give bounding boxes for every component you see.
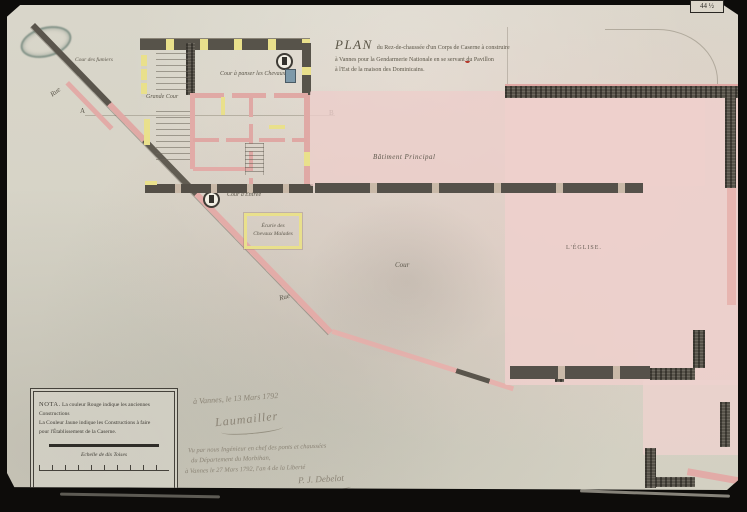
- staircase: [245, 143, 264, 175]
- stable-stall-lines-2: [156, 111, 190, 163]
- cour-des-fumiers-label: Cour des fumiers: [75, 57, 113, 63]
- batiment-principal-label: Bâtiment Principal: [373, 153, 435, 161]
- water-trough: [285, 69, 296, 83]
- ecurie-label-line2: Chevaux Malades: [247, 230, 299, 238]
- stable-stall-lines-1: [156, 53, 190, 95]
- batiment-south-wall: [315, 183, 643, 193]
- building-partition-horizontal-2: [193, 167, 251, 171]
- eglise-wash: [505, 96, 741, 385]
- manuscript-date: à Vannes, le 13 Mars 1792: [193, 391, 279, 406]
- building-partition-horizontal: [193, 138, 307, 142]
- yellow-inner-wall-2: [269, 125, 285, 129]
- paper-edge-glint-left: [60, 493, 220, 499]
- scale-caption: Echelle de dix Toises: [39, 451, 169, 460]
- lower-east-wall: [720, 402, 730, 447]
- point-a-label: A: [80, 107, 86, 115]
- title-line3: à l'Est de la maison des Dominicains.: [335, 67, 550, 73]
- connecting-wall: [650, 368, 695, 380]
- red-check-mark: [465, 57, 470, 63]
- rue-label-lower: Rue: [278, 292, 291, 303]
- nota-heading: NOTA.: [39, 401, 61, 408]
- pencil-arc: [605, 29, 718, 92]
- cour-label: Cour: [395, 261, 409, 269]
- caserne-right-wall: [302, 43, 311, 95]
- south-corner-wall-h: [645, 477, 695, 487]
- yellow-wall-segment-1: [141, 55, 147, 97]
- well-icon-2: [203, 191, 220, 208]
- title-line2: à Vannes pour la Gendarmerie Nationale e…: [335, 57, 550, 63]
- nota-line3: La Couleur Jaune indique les Constructio…: [39, 419, 169, 428]
- title-line1: du Rez-de-chaussée d'un Corps de Caserne…: [377, 45, 510, 51]
- inner-cross-wall: [693, 330, 705, 368]
- building-left-wall: [190, 93, 195, 169]
- court-shading: [307, 197, 507, 367]
- nota-line1: La couleur Rouge indique les anciennes: [62, 402, 150, 408]
- signature-flourish-2: [296, 484, 351, 493]
- manuscript-approval-3: à Vannes le 27 Mars 1792, l'an 4 de la L…: [185, 464, 306, 475]
- ecurie-room: Écurie des Chevaux Malades: [244, 213, 302, 249]
- yellow-wall-segment-2: [144, 119, 150, 145]
- nota-legend-box: NOTA. La couleur Rouge indique les ancie…: [30, 388, 178, 492]
- entry-court-wall-yellow: [145, 181, 157, 185]
- photographed-plan: PLAN du Rez-de-chaussée d'un Corps de Ca…: [0, 0, 747, 512]
- court-south-wall: [510, 366, 650, 379]
- manuscript-approval-1: Vu par nous Ingénieur en chef des ponts …: [188, 443, 327, 455]
- title-plan-word: PLAN: [335, 37, 373, 52]
- well-icon: [276, 53, 293, 70]
- nota-legend-inner: NOTA. La couleur Rouge indique les ancie…: [33, 391, 175, 489]
- south-pink-diagonal: [687, 468, 742, 484]
- yellow-inner-wall-1: [221, 97, 225, 115]
- cour-d-entree-label: Cour d'Entrée: [227, 192, 261, 198]
- ecurie-label-line1: Écurie des: [247, 222, 299, 230]
- nota-line4: pour l'Établissement de la Caserne.: [39, 428, 169, 437]
- nota-line2: Constructions: [39, 410, 169, 419]
- rue-label-upper: Rue: [49, 85, 63, 98]
- north-wall-band: [505, 84, 742, 98]
- manuscript-signature-2: P. J. Debelot: [298, 473, 344, 485]
- caserne-top-wall: [140, 38, 310, 50]
- paper-edge-glint-right: [580, 489, 730, 497]
- scale-ruler: [39, 465, 169, 471]
- east-wall-band: [725, 96, 736, 188]
- catalog-tag: 44 ½: [690, 0, 724, 13]
- grande-cour-label: Grande Cour: [146, 94, 178, 100]
- manuscript-approval-2: du Département du Morbihan,: [191, 455, 271, 465]
- cour-a-panser-label: Cour à panser les Chevaux: [220, 71, 285, 77]
- eglise-label: L'ÉGLISE.: [566, 245, 602, 251]
- scale-bar: [49, 444, 159, 447]
- title-block: PLAN du Rez-de-chaussée d'un Corps de Ca…: [335, 39, 550, 73]
- eglise-right-pink-wall: [727, 185, 736, 305]
- paper-sheet: PLAN du Rez-de-chaussée d'un Corps de Ca…: [7, 5, 738, 490]
